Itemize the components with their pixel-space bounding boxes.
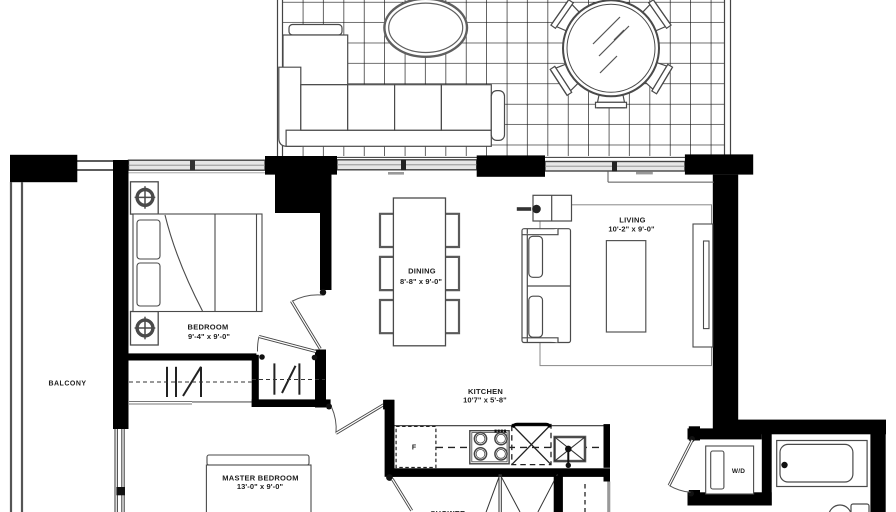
svg-text:BEDROOM: BEDROOM	[188, 323, 229, 332]
svg-text:9'-4" x 9'-0": 9'-4" x 9'-0"	[188, 332, 230, 341]
svg-text:W/D: W/D	[732, 468, 745, 475]
svg-text:10'7" x 5'-8": 10'7" x 5'-8"	[463, 395, 507, 404]
svg-text:DINING: DINING	[408, 267, 436, 276]
svg-text:LIVING: LIVING	[619, 215, 646, 224]
svg-text:10'-2" x 9'-0": 10'-2" x 9'-0"	[608, 225, 655, 234]
svg-text:BALCONY: BALCONY	[48, 381, 86, 388]
svg-text:13'-0" x 9'-0": 13'-0" x 9'-0"	[237, 482, 284, 491]
svg-text:8'-8" x 9'-0": 8'-8" x 9'-0"	[400, 277, 442, 286]
svg-text:F: F	[412, 445, 417, 452]
